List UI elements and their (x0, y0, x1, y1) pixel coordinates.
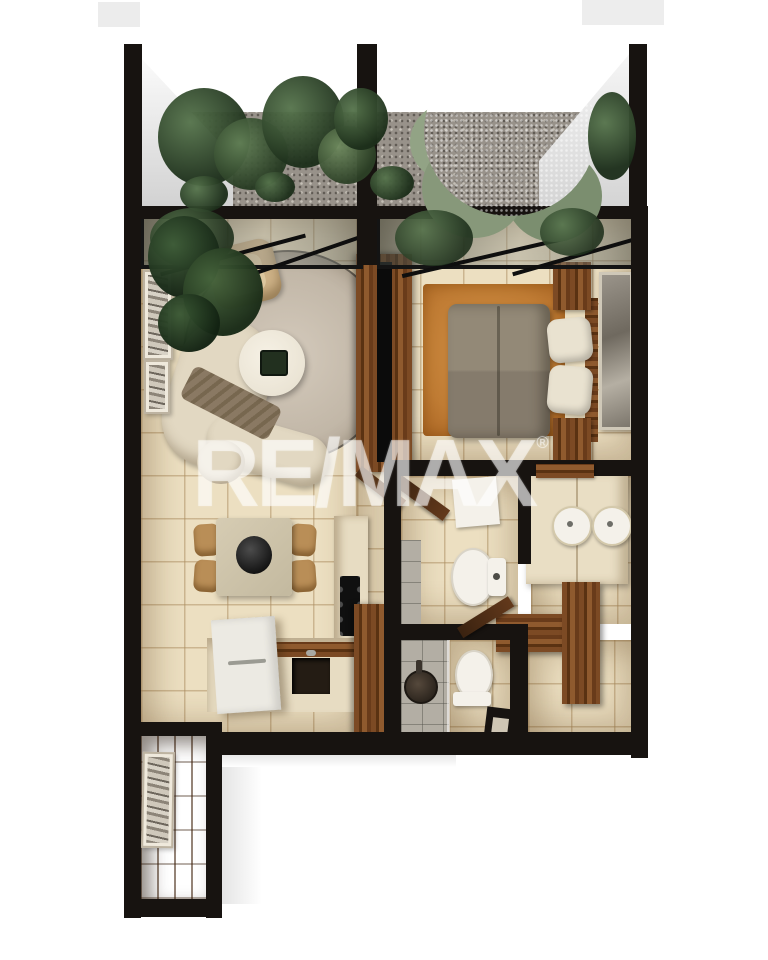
vanity-faucet-right (607, 521, 613, 527)
pillow-bottom (546, 364, 594, 416)
indoor-plant-living-3 (158, 294, 220, 352)
pantry-wood-wall (354, 604, 385, 738)
remax-watermark: RE/MAX® (192, 424, 549, 525)
bottom-wall-outer-shadow (206, 755, 456, 767)
bath2-closet-divider-wall (510, 624, 528, 738)
pillow-top (546, 316, 594, 364)
gravel-plant-2 (255, 172, 295, 202)
shower-arm (416, 660, 422, 674)
hallway-bottom-wall (124, 899, 222, 917)
closet-wardrobe-vertical (562, 582, 600, 704)
dining-table-centerpiece (236, 536, 272, 574)
dining-chair-right-1 (289, 523, 317, 557)
kitchen-faucet (306, 650, 316, 656)
registered-trademark-symbol: ® (536, 433, 548, 452)
watermark-text: RE/MAX (192, 420, 534, 527)
hallway-art-frame (141, 752, 175, 849)
kitchen-appliance (211, 616, 281, 714)
wall-cap-top-left (98, 2, 140, 27)
shower-glass-partition (447, 640, 450, 732)
nightstand-top (553, 262, 591, 310)
gravel-plant-1 (180, 176, 228, 212)
living-wall-art-small (149, 365, 165, 409)
bottom-main-wall (206, 732, 648, 755)
hallway-art (146, 757, 169, 843)
wc-flush-button (493, 573, 500, 580)
post-top-left (124, 44, 142, 214)
wall-cap-top-right (582, 0, 664, 25)
gravel-plant-3 (370, 166, 414, 200)
glass-mullion (257, 232, 372, 275)
terrace-tree-large (424, 48, 596, 216)
coffee-table-tray (260, 350, 288, 376)
left-outer-wall (124, 206, 141, 918)
terrace-shrub-6 (588, 92, 636, 180)
vanity-faucet-left (567, 521, 573, 527)
bathroom2-toilet-tank (453, 692, 491, 706)
bedroom-wall-art (599, 272, 633, 430)
wc-shower-tile-strip (401, 540, 421, 624)
terrace-shrub-5 (334, 88, 388, 150)
overhang-foliage-2 (395, 210, 473, 266)
overhang-foliage-3 (540, 208, 604, 256)
living-wall-art-frame-small (144, 360, 170, 414)
floor-plan-rendering: RE/MAX® (0, 0, 768, 960)
right-outer-wall (631, 206, 648, 758)
hallway-right-wall (206, 732, 222, 918)
kitchen-sink (292, 658, 330, 694)
shower-head (404, 670, 438, 704)
wc-bath2-divider-wall (384, 624, 520, 640)
dining-chair-right-2 (289, 559, 317, 593)
bed-duvet-crease (497, 306, 500, 436)
